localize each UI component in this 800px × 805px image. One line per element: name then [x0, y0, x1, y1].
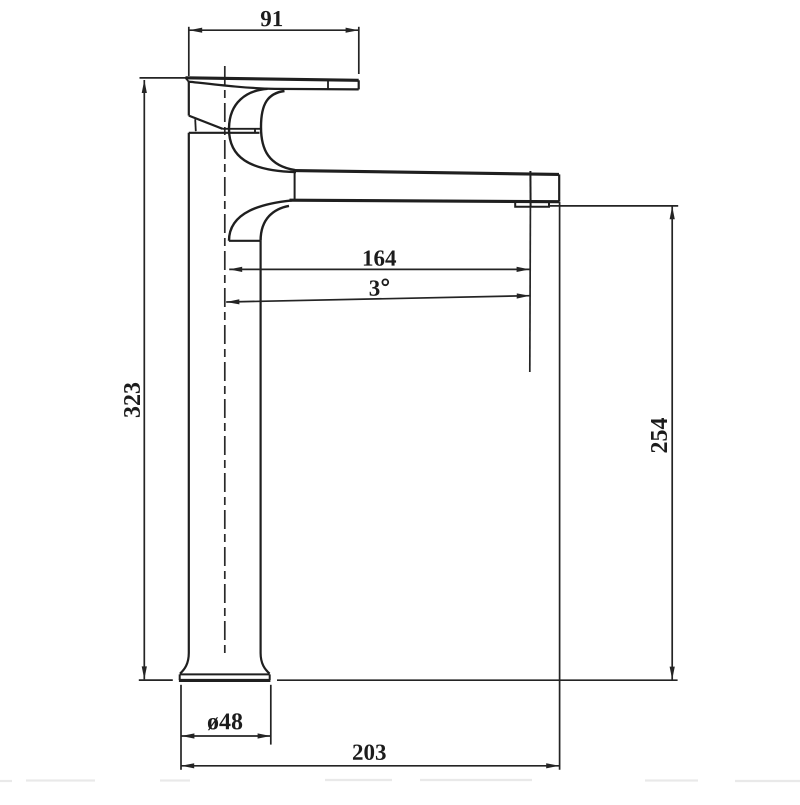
svg-text:254: 254 [647, 418, 673, 454]
svg-text:164: 164 [362, 246, 397, 271]
svg-text:3: 3 [369, 276, 381, 301]
svg-text:ø48: ø48 [207, 709, 243, 735]
svg-text:323: 323 [120, 382, 146, 418]
svg-text:203: 203 [352, 740, 387, 765]
svg-text:91: 91 [260, 6, 283, 31]
